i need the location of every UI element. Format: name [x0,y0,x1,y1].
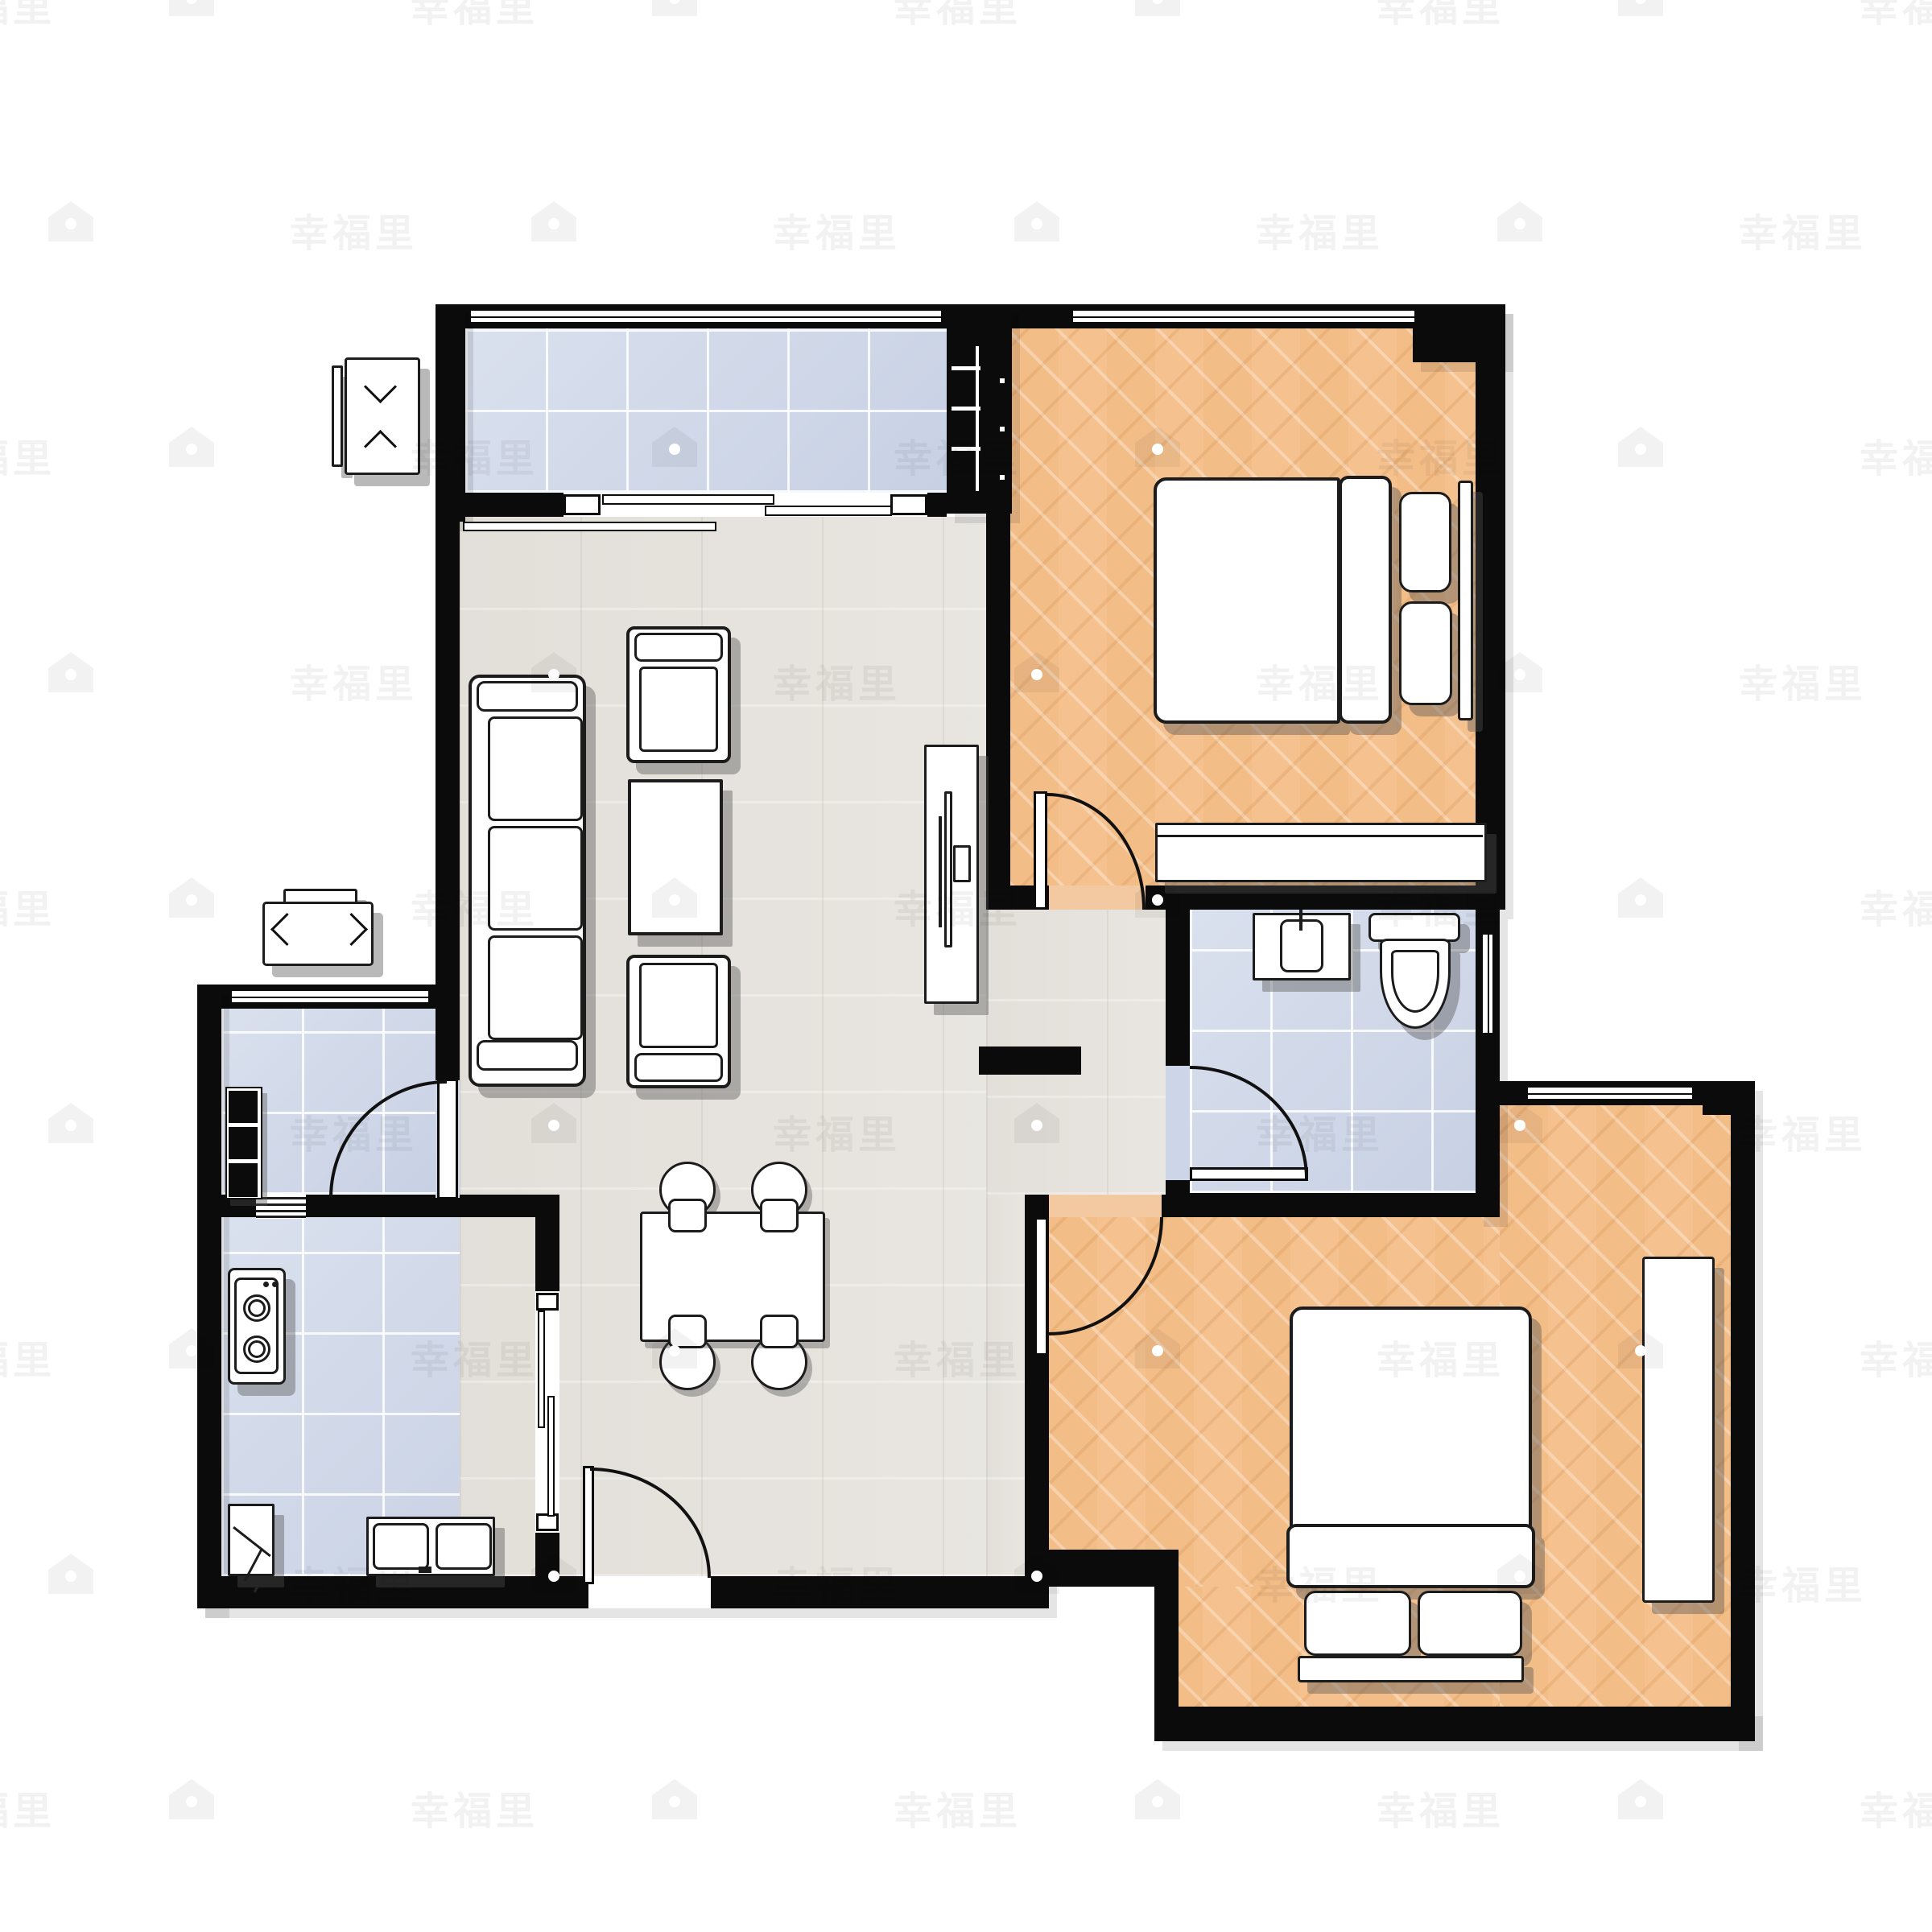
balcony-sliding-panel [602,494,774,505]
tv-soundbar [939,816,942,927]
gas-stove [228,1268,286,1385]
sliding-door-post [536,1293,559,1311]
balcony-sill [463,522,716,531]
sink-basin [436,1523,492,1570]
shaft-rail [976,346,979,491]
toilet [1368,913,1460,1030]
dining-chair-pad [668,1199,707,1232]
bedroom1-door-leaf [1034,791,1047,910]
wall-bedroom2-east [1731,1081,1755,1741]
second-bed [1286,1307,1535,1682]
opening-dining-south-door [588,1576,711,1608]
room-dining-strip [986,1195,1025,1576]
window-foyer-north [229,989,431,1005]
armchair-north [626,626,731,763]
wall-bedroom2-south [1154,1707,1755,1741]
armchair-backrest [634,1053,723,1082]
window-bathroom-east [1480,932,1495,1035]
stove-knob [272,1282,278,1287]
kitchen-sliding-panel [538,1311,545,1428]
stove-burner-inner [248,1340,266,1358]
tv-screen [944,791,952,947]
toilet-tank [1368,913,1460,942]
shoe-cabinet [225,1087,262,1199]
corner-counter [228,1504,275,1576]
armchair-backrest [634,633,723,662]
room-balcony [465,328,947,493]
dining-chair-pad [668,1315,707,1348]
pillow [1399,601,1452,705]
coffee-table-top [628,779,723,935]
window-bedroom2-north [1525,1085,1695,1101]
coffee-table [628,779,723,935]
bedroom1-dresser [1155,823,1487,882]
bed-blanket-fold [1339,476,1392,724]
pillow [1399,492,1451,592]
wall-bedroom1-east [1476,304,1505,910]
sofa-cushion [488,935,583,1040]
sofa-cushion [488,716,583,821]
bed-blanket-fold [1286,1524,1535,1588]
entry-bench [262,889,375,966]
tv-mount-box [953,845,971,882]
entry-threshold [256,1193,306,1219]
kitchen-sink [366,1517,495,1576]
sink-faucet [419,1567,431,1573]
wardrobe-body [1642,1257,1715,1603]
three-seat-sofa [469,675,586,1087]
sliding-door-post [563,494,601,515]
bed-mattress [1290,1307,1532,1530]
dresser-top [1155,823,1487,882]
sofa-cushion [488,826,583,931]
wall-hall-stub [979,1046,1081,1075]
wall-bathroom-west-a [1166,910,1190,1066]
wall-balcony-south-b [927,493,947,517]
sink-basin [373,1523,429,1570]
opening-bedroom2-door [1049,1195,1162,1217]
wall-living-west [436,522,460,985]
primary-bed [1154,476,1473,724]
vanity-faucet [1299,910,1302,931]
dining-chair-pad [760,1315,799,1348]
ac-outdoor-unit [332,357,420,478]
wall-bedroom1-west [986,514,1010,910]
pillow [1418,1591,1522,1656]
shaft-dot [1000,427,1005,431]
bed-headboard [1458,481,1473,720]
stove-knob [263,1282,269,1287]
sliding-door-post [890,494,927,515]
armchair-seat [639,667,718,752]
tv-cabinet [924,745,980,1004]
pillow [1304,1591,1411,1656]
armchair-south [626,955,731,1088]
bed-mattress [1154,477,1340,724]
wall-bathroom-south [1166,1193,1500,1217]
floor-plan-canvas [0,0,1932,1932]
wall-landing-east [436,985,460,1080]
wall-balcony-west [436,304,465,522]
bedroom2-wardrobe [1642,1257,1715,1603]
vanity-sink [1253,913,1351,980]
window-balcony-north [469,308,943,324]
sofa-armrest [477,1040,578,1071]
bedroom2-door-leaf [1034,1217,1048,1356]
wall-notch-top [1025,1550,1179,1587]
shaft-dot [1000,378,1005,383]
sofa-armrest [477,681,578,712]
balcony-sliding-panel [765,506,892,516]
wall-ne2-corner [1703,1081,1755,1115]
wall-notch-right [1154,1587,1179,1707]
wall-kitchen-east-a [535,1195,559,1293]
stove-burner-inner [248,1299,266,1317]
dining-chair-pad [760,1199,799,1232]
window-bedroom1-north [1071,308,1417,324]
kitchen-sliding-panel [547,1396,555,1517]
shaft-dot [1000,475,1005,480]
armchair-seat [639,963,718,1048]
bed-headboard [1298,1656,1524,1682]
opening-bathroom-door [1166,1066,1190,1180]
wall-west-outer [197,985,221,1608]
ac-mount-bar [332,365,343,467]
wall-balcony-south-a [436,493,564,517]
